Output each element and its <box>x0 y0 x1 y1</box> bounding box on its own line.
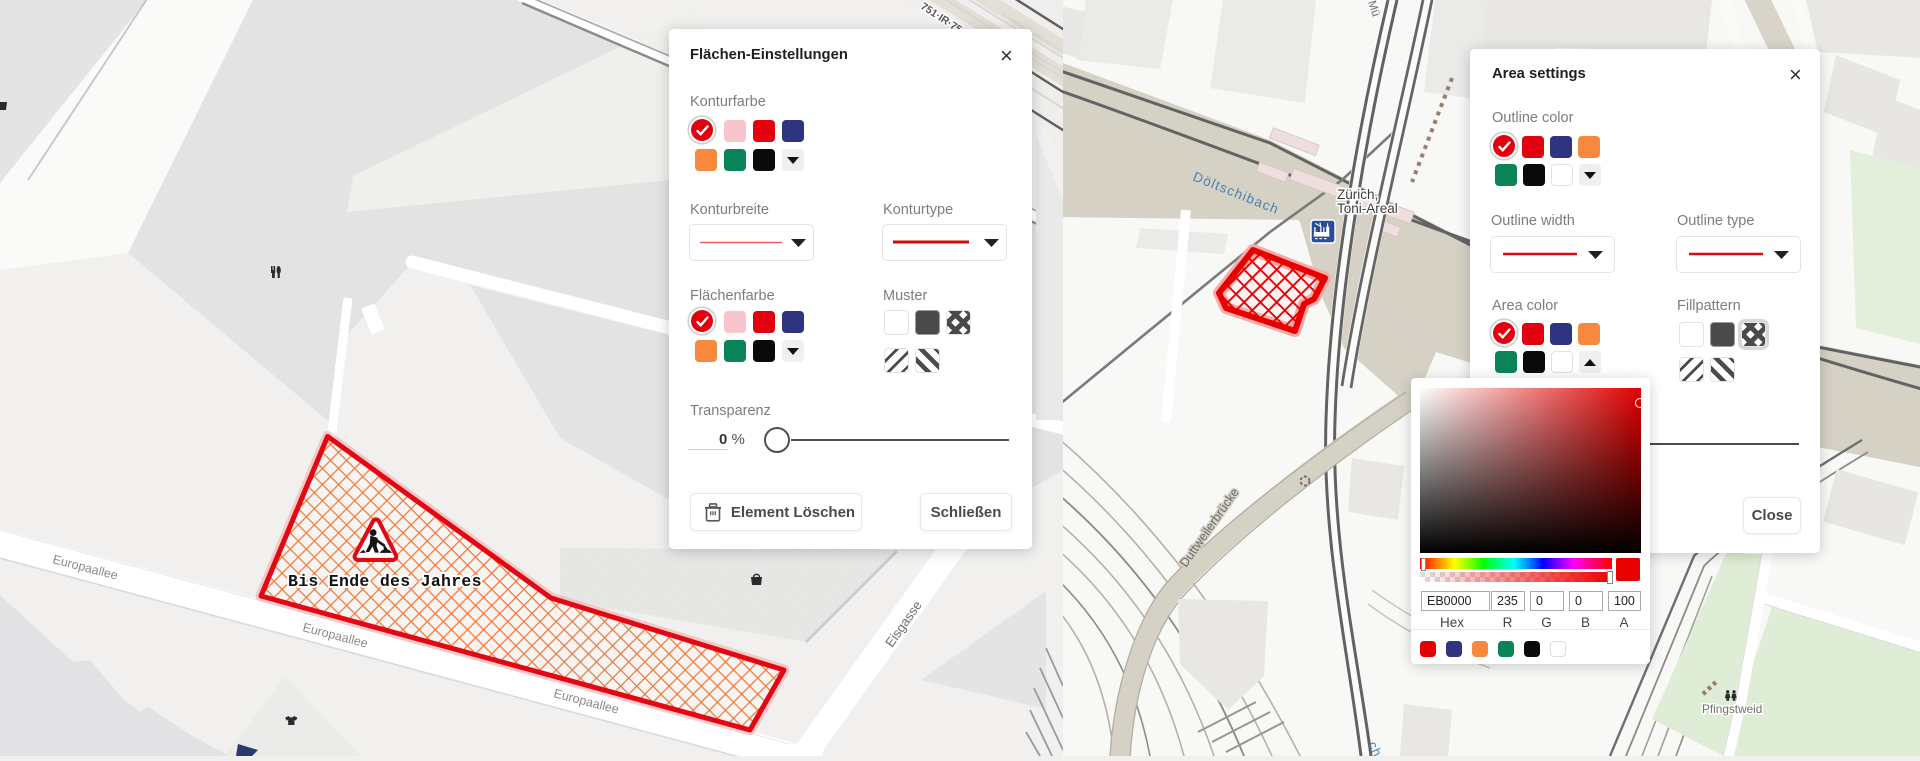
svg-text:Zürich,: Zürich, <box>1337 187 1378 202</box>
svg-text:Pfingstweid: Pfingstweid <box>1702 702 1762 716</box>
svg-text:Bis Ende des Jahres: Bis Ende des Jahres <box>288 572 482 591</box>
svg-text:Toni-Areal: Toni-Areal <box>1337 201 1398 216</box>
